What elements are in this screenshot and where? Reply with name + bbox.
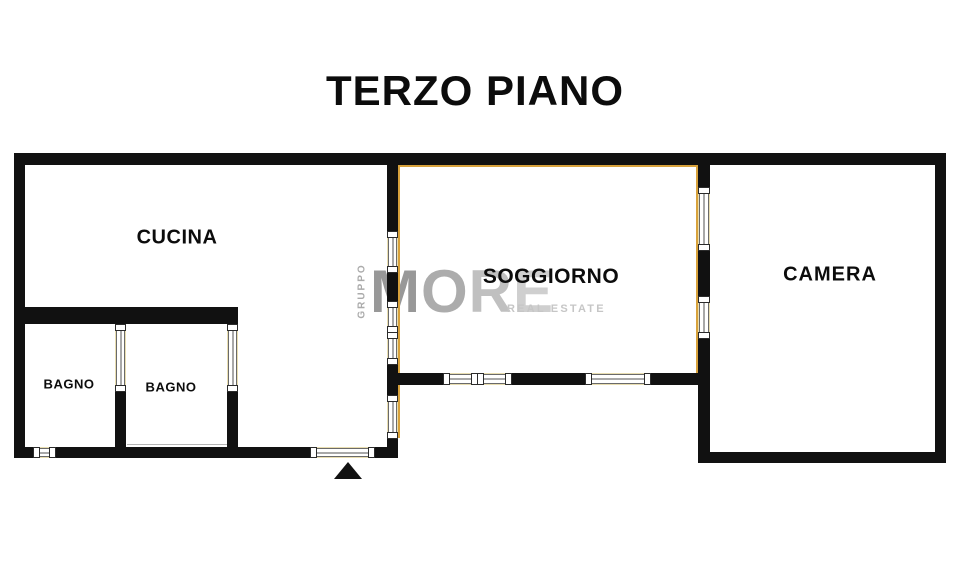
floor-plan: TERZO PIANO GRUPPO MORE REAL ESTATE CUCI… xyxy=(0,0,956,586)
watermark-vertical-text: GRUPPO xyxy=(357,263,368,318)
watermark-subtitle: REAL ESTATE xyxy=(507,303,606,315)
page-title: TERZO PIANO xyxy=(326,67,624,115)
door-opening xyxy=(227,324,238,392)
window xyxy=(387,231,398,273)
door-opening-glass xyxy=(228,324,237,392)
entrance-door-cap xyxy=(368,447,375,458)
window xyxy=(387,301,398,333)
window-cap xyxy=(477,373,484,385)
room-label-bagno-right: BAGNO xyxy=(146,380,197,395)
window-cap xyxy=(33,447,40,458)
door-opening-cap xyxy=(115,385,126,392)
wall-outer-top xyxy=(14,153,946,165)
soggiorno-accent-outline xyxy=(398,165,400,438)
door-opening-cap xyxy=(227,385,238,392)
window xyxy=(33,447,56,458)
entrance-door-cap xyxy=(310,447,317,458)
wall-camera-bottom xyxy=(698,452,946,463)
door-opening xyxy=(115,324,126,392)
window-glass xyxy=(699,187,709,251)
window-cap xyxy=(387,231,398,238)
window-glass xyxy=(585,374,651,384)
window xyxy=(387,395,398,439)
watermark-letter: O xyxy=(421,258,469,325)
room-label-soggiorno: SOGGIORNO xyxy=(483,265,619,289)
wall-outer-bottom xyxy=(14,447,33,458)
window xyxy=(585,373,651,385)
room-label-bagno-left: BAGNO xyxy=(44,377,95,392)
wall-camera-left xyxy=(698,338,710,463)
room-label-cucina: CUCINA xyxy=(137,227,218,250)
window-cap xyxy=(698,332,710,339)
entrance-door-glass xyxy=(310,448,375,457)
wall-soggiorno-bottom xyxy=(511,373,585,385)
room-label-camera: CAMERA xyxy=(783,264,877,287)
wall-outer-right xyxy=(935,153,946,463)
entrance-marker-icon xyxy=(334,462,362,479)
window xyxy=(443,373,478,385)
window-cap xyxy=(387,358,398,365)
entrance-door xyxy=(310,447,375,458)
floor-hairline xyxy=(127,444,227,445)
window-cap xyxy=(387,332,398,339)
wall-outer-left xyxy=(14,153,25,458)
window-cap xyxy=(698,187,710,194)
wall-bagni-divider xyxy=(115,391,126,458)
window-cap xyxy=(49,447,56,458)
window-cap xyxy=(387,395,398,402)
window-cap xyxy=(387,301,398,308)
wall-soggiorno-camera xyxy=(698,250,710,297)
wall-cucina-soggiorno xyxy=(387,272,398,302)
wall-cucina-bagni xyxy=(14,307,238,324)
door-opening-glass xyxy=(116,324,125,392)
window-cap xyxy=(698,296,710,303)
wall-soggiorno-camera xyxy=(698,163,710,188)
window xyxy=(698,187,710,251)
window xyxy=(698,296,710,339)
wall-outer-bottom xyxy=(56,447,310,458)
door-opening-cap xyxy=(227,324,238,331)
window-cap xyxy=(585,373,592,385)
window-cap xyxy=(505,373,512,385)
window-cap xyxy=(443,373,450,385)
window-cap xyxy=(387,432,398,439)
window xyxy=(477,373,512,385)
door-opening-cap xyxy=(115,324,126,331)
wall-bagno-right xyxy=(227,391,238,458)
window-cap xyxy=(644,373,651,385)
wall-cucina-soggiorno xyxy=(387,165,398,231)
soggiorno-accent-outline xyxy=(400,165,697,167)
wall-soggiorno-bottom xyxy=(387,373,445,385)
window-cap xyxy=(387,266,398,273)
window xyxy=(387,332,398,365)
wall-cucina-soggiorno xyxy=(387,438,398,458)
window-cap xyxy=(698,244,710,251)
